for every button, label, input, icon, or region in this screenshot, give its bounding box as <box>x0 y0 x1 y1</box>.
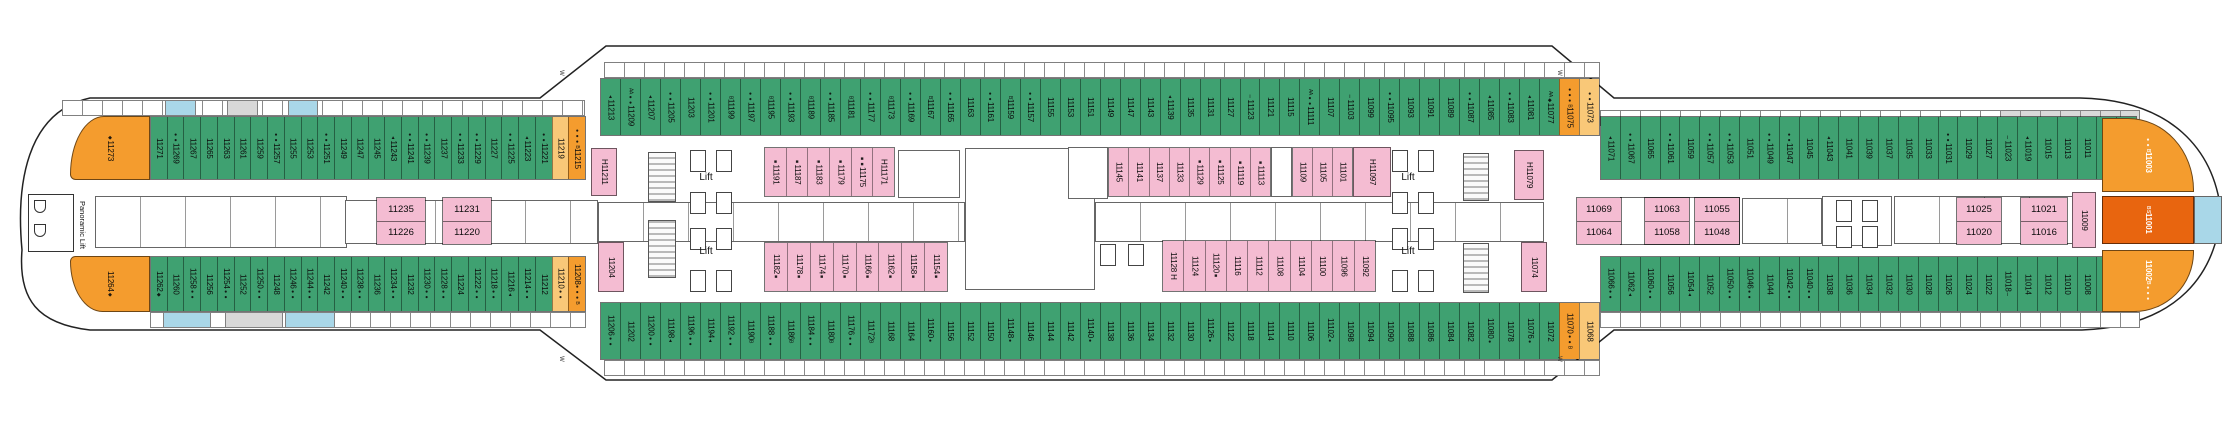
cabin-11062[interactable]: 11062▲ <box>1620 257 1640 311</box>
cabin-11032[interactable]: 11032 <box>1878 257 1898 311</box>
cabin-11212[interactable]: 11212 <box>535 257 552 311</box>
lift-shaft-icon <box>1392 270 1408 292</box>
cabin-11039[interactable]: 11039 <box>1858 117 1878 179</box>
cabin-11144[interactable]: 11144 <box>1040 303 1060 359</box>
cabin-11208[interactable]: 11208●●● B <box>568 257 585 311</box>
cabin-11205[interactable]: ●●11205 <box>660 79 680 135</box>
cabin-11088[interactable]: 11088 <box>1399 303 1419 359</box>
cabin-11123[interactable]: Ⅰ11123 <box>1240 79 1260 135</box>
cabin-11249[interactable]: 11249 <box>334 117 351 179</box>
cabin-11204[interactable]: 11204 <box>598 242 624 292</box>
cabin-11216[interactable]: 11216▲ <box>501 257 518 311</box>
cabin-label: 11100 <box>1318 256 1326 276</box>
cabin-11153[interactable]: 11153 <box>1060 79 1080 135</box>
cabin-11200[interactable]: 11200●● <box>640 303 660 359</box>
cabin-11172[interactable]: 11172B <box>860 303 880 359</box>
cabin-11233[interactable]: ●●11233 <box>451 117 468 179</box>
cabin-11037[interactable]: 11037 <box>1878 117 1898 179</box>
cabin-11118[interactable]: 11118 <box>1240 303 1260 359</box>
cabin-11190[interactable]: 11190B <box>740 303 760 359</box>
cabin-11148[interactable]: 11148● <box>1000 303 1020 359</box>
cabin-11187[interactable]: ■11187 <box>786 148 808 196</box>
cabin-11189[interactable]: B11189 <box>800 79 820 135</box>
cabin-11086[interactable]: 11086 <box>1419 303 1439 359</box>
cabin-11028[interactable]: 11028 <box>1918 257 1938 311</box>
cabin-11152[interactable]: 11152 <box>960 303 980 359</box>
cabin-H11211[interactable]: H11211 <box>591 148 617 196</box>
cabin-11036[interactable]: 11036 <box>1838 257 1858 311</box>
cabin-11149[interactable]: 11149 <box>1100 79 1120 135</box>
cabin-11244[interactable]: 11244●● <box>301 257 318 311</box>
cabin-11258[interactable]: 11258●● <box>183 257 200 311</box>
cabin-label: 11039 <box>1865 138 1873 159</box>
cabin-number: 11147 <box>1126 97 1135 117</box>
cabin-11255[interactable]: 11255 <box>284 117 301 179</box>
cabin-11066[interactable]: 11066●● <box>1601 257 1620 311</box>
cabin-11251[interactable]: ●●11251 <box>317 117 334 179</box>
cabin-11230[interactable]: 11230●● <box>418 257 435 311</box>
cabin-label: 11248 <box>272 274 280 295</box>
cabin-11098[interactable]: 11098 <box>1339 303 1359 359</box>
cabin-11160[interactable]: 11160● <box>920 303 940 359</box>
cabin-label: 11200●● <box>646 315 654 347</box>
cabin-11146[interactable]: 11146 <box>1020 303 1040 359</box>
cabin-11020[interactable]: 11020 <box>1957 221 2001 245</box>
cabin-11069[interactable]: 11069 <box>1577 198 1621 221</box>
cabin-11196[interactable]: 11196●● <box>680 303 700 359</box>
cabin-11105[interactable]: 11105 <box>1312 148 1332 196</box>
cabin-11151[interactable]: 11151 <box>1080 79 1100 135</box>
cabin-pair-11231[interactable]: 1123111220 <box>442 197 492 245</box>
cabin-11219[interactable]: 11219 <box>552 117 569 179</box>
cabin-number: 11139 <box>1166 100 1175 120</box>
cabin-11154[interactable]: 11154■ <box>924 243 947 291</box>
cabin-11115[interactable]: 11115 <box>1279 79 1299 135</box>
cabin-11110[interactable]: 11110 <box>1279 303 1299 359</box>
cabin-11121[interactable]: 11121 <box>1259 79 1279 135</box>
cabin-11112[interactable]: 11112 <box>1247 241 1268 291</box>
cabin-11193[interactable]: ●●11193 <box>780 79 800 135</box>
cabin-pair-11021[interactable]: 1102111016 <box>2020 197 2068 245</box>
cabin-11026[interactable]: 11026 <box>1938 257 1958 311</box>
cabin-11155[interactable]: 11155 <box>1040 79 1060 135</box>
cabin-11010[interactable]: 11010 <box>2057 257 2077 311</box>
cabin-11214[interactable]: 11214●● <box>518 257 535 311</box>
cabin-11139[interactable]: ▲11139 <box>1160 79 1180 135</box>
cabin-number: 11133 <box>1175 162 1184 182</box>
cabin-11016[interactable]: 11016 <box>2021 221 2067 245</box>
cabin-11141[interactable]: 11141 <box>1128 148 1148 196</box>
cabin-11075[interactable]: ●●● B11075 <box>1559 79 1579 135</box>
cabin-label: 11192●● <box>726 315 734 346</box>
cabin-11074[interactable]: 11074 <box>1521 242 1547 292</box>
cabin-11011[interactable]: 11011 <box>2077 117 2097 179</box>
cabin-11218[interactable]: 11218●● <box>485 257 502 311</box>
cabin-marks: ■ <box>794 159 800 165</box>
cabin-11147[interactable]: 11147 <box>1120 79 1140 135</box>
cabin-number: 11014 <box>2023 274 2032 295</box>
cabin-11265[interactable]: 11265 <box>200 117 217 179</box>
cabin-11108[interactable]: 11108 <box>1268 241 1289 291</box>
cabin-11195[interactable]: B11195 <box>760 79 780 135</box>
cabin-11253[interactable]: 11253 <box>301 117 318 179</box>
cabin-11128H[interactable]: 11128 H <box>1163 241 1183 291</box>
cabin-11163[interactable]: 11163 <box>960 79 980 135</box>
cabin-11185[interactable]: ●●11185 <box>820 79 840 135</box>
cabin-number: 11033 <box>1924 138 1933 159</box>
cabin-11023[interactable]: Ⅰ11023 <box>1997 117 2017 179</box>
cabin-11091[interactable]: 11091 <box>1419 79 1439 135</box>
cabin-11087[interactable]: ●●11087 <box>1459 79 1479 135</box>
cabin-11238[interactable]: 11238●● <box>351 257 368 311</box>
cabin-11199[interactable]: B11199 <box>720 79 740 135</box>
cabin-row: 11145111411113711133■11129■11125■11119■1… <box>1108 147 1271 197</box>
cabin-11119[interactable]: ■11119 <box>1230 148 1250 196</box>
cabin-11133[interactable]: 11133 <box>1169 148 1189 196</box>
cabin-11068[interactable]: 11068 <box>1579 303 1599 359</box>
cabin-11092[interactable]: 11092 <box>1354 241 1375 291</box>
cabin-11137[interactable]: 11137 <box>1149 148 1169 196</box>
cabin-11161[interactable]: ●●11161 <box>980 79 1000 135</box>
cabin-11129[interactable]: ■11129 <box>1189 148 1209 196</box>
cabin-11116[interactable]: 11116 <box>1226 241 1247 291</box>
cabin-11271[interactable]: 11271 <box>151 117 167 179</box>
cabin-11252[interactable]: 11252 <box>234 257 251 311</box>
cabin-11134[interactable]: 11134 <box>1140 303 1160 359</box>
cabin-11235[interactable]: 11235 <box>377 198 425 221</box>
cabin-11168[interactable]: 11168 <box>880 303 900 359</box>
cabin-11109[interactable]: 11109 <box>1293 148 1312 196</box>
cabin-label: 11135 <box>1186 97 1194 117</box>
cabin-11015[interactable]: 11015 <box>2037 117 2057 179</box>
cabin-label: 11224 <box>456 274 464 295</box>
cabin-11001[interactable]: B S11001 <box>2102 196 2194 244</box>
cabin-11107[interactable]: 11107 <box>1319 79 1339 135</box>
cabin-11159[interactable]: B11159 <box>1000 79 1020 135</box>
cabin-11175[interactable]: ■■11175 <box>851 148 873 196</box>
cabin-11051[interactable]: 11051 <box>1739 117 1759 179</box>
cabin-11124[interactable]: 11124 <box>1183 241 1204 291</box>
cabin-11210[interactable]: 11210●● <box>552 257 569 311</box>
cabin-11191[interactable]: ■11191 <box>765 148 786 196</box>
cabin-11076[interactable]: 11076● <box>1519 303 1539 359</box>
cabin-marks: ●● <box>1607 289 1613 300</box>
cabin-11125[interactable]: ■11125 <box>1209 148 1229 196</box>
cabin-H11171[interactable]: H11171 <box>872 148 894 196</box>
cabin-11206[interactable]: 11206●● <box>601 303 620 359</box>
cabin-11263[interactable]: 11263 <box>217 117 234 179</box>
cabin-11164[interactable]: 11164 <box>900 303 920 359</box>
cabin-11094[interactable]: 11094 <box>1359 303 1379 359</box>
cabin-11065[interactable]: 11065 <box>1640 117 1660 179</box>
cabin-11234[interactable]: 11234●● <box>384 257 401 311</box>
cabin-11197[interactable]: ●●11197 <box>740 79 760 135</box>
cabin-11084[interactable]: 11084 <box>1439 303 1459 359</box>
cabin-11056[interactable]: 11056 <box>1660 257 1680 311</box>
cabin-11207[interactable]: ▲11207 <box>640 79 660 135</box>
cabin-11100[interactable]: 11100 <box>1311 241 1332 291</box>
cabin-11106[interactable]: 11106 <box>1299 303 1319 359</box>
cabin-label: 11026 <box>1944 274 1952 295</box>
cabin-11082[interactable]: 11082 <box>1459 303 1479 359</box>
cabin-number: 11105 <box>1319 162 1328 182</box>
cabin-11194[interactable]: 11194▲ <box>700 303 720 359</box>
cabin-11156[interactable]: 11156 <box>940 303 960 359</box>
cabin-11228[interactable]: 11228●● <box>434 257 451 311</box>
cabin-11031[interactable]: ●●11031 <box>1938 117 1958 179</box>
cabin-pair-11055[interactable]: 1105511048 <box>1694 197 1740 245</box>
cabin-11055[interactable]: 11055 <box>1695 198 1739 221</box>
cabin-11179[interactable]: ■11179 <box>829 148 851 196</box>
cabin-11227[interactable]: 11227 <box>485 117 502 179</box>
cabin-11083[interactable]: ●●11083 <box>1499 79 1519 135</box>
cabin-11127[interactable]: 11127 <box>1220 79 1240 135</box>
cabin-11254[interactable]: 11254●● <box>217 257 234 311</box>
cabin-11201[interactable]: ●●11201 <box>700 79 720 135</box>
cabin-11095[interactable]: ●●11095 <box>1379 79 1399 135</box>
cabin-11247[interactable]: 11247 <box>351 117 368 179</box>
cabin-11142[interactable]: 11142 <box>1060 303 1080 359</box>
cabin-11260[interactable]: 11260 <box>167 257 184 311</box>
cabin-11184[interactable]: 11184●● <box>800 303 820 359</box>
cabin-11012[interactable]: 11012 <box>2037 257 2057 311</box>
cabin-11053[interactable]: ●●11053 <box>1719 117 1739 179</box>
cabin-11240[interactable]: 11240●● <box>334 257 351 311</box>
cabin-11057[interactable]: ●●11057 <box>1699 117 1719 179</box>
cabin-11077[interactable]: AA ◆11077 <box>1539 79 1559 135</box>
cabin-11165[interactable]: ●●11165 <box>940 79 960 135</box>
cabin-11008[interactable]: 11008 <box>2077 257 2097 311</box>
cabin-11113[interactable]: ■11113 <box>1250 148 1270 196</box>
cabin-11176[interactable]: 11176●● <box>840 303 860 359</box>
cabin-11022[interactable]: 11022 <box>1977 257 1997 311</box>
cabin-11143[interactable]: 11143 <box>1140 79 1160 135</box>
cabin-11250[interactable]: 11250●● <box>250 257 267 311</box>
cabin-11072[interactable]: 11072 <box>1539 303 1559 359</box>
cabin-11157[interactable]: ●●11157 <box>1020 79 1040 135</box>
cabin-number: 11223 <box>523 140 532 161</box>
cabin-label: 11265 <box>205 138 213 159</box>
cabin-11038[interactable]: 11038 <box>1818 257 1838 311</box>
cabin-11049[interactable]: ●●11049 <box>1759 117 1779 179</box>
cabin-11180[interactable]: 11180B <box>820 303 840 359</box>
service-room <box>1271 147 1292 197</box>
cabin-label: ●●11225 <box>506 132 514 164</box>
cabin-11043[interactable]: ▲11043 <box>1818 117 1838 179</box>
cabin-marks: ■ <box>1213 273 1219 279</box>
cabin-pair-11025[interactable]: 1102511020 <box>1956 197 2002 245</box>
cabin-number: 11071 <box>1606 140 1615 161</box>
cabin-11021[interactable]: 11021 <box>2021 198 2067 221</box>
cabin-11101[interactable]: 11101 <box>1332 148 1352 196</box>
cabin-11025[interactable]: 11025 <box>1957 198 2001 221</box>
cabin-11177[interactable]: ●●11177 <box>860 79 880 135</box>
cabin-11223[interactable]: ▲11223 <box>518 117 535 179</box>
cabin-11229[interactable]: ●●11229 <box>468 117 485 179</box>
cabin-number: 11020 <box>1966 227 1992 238</box>
cabin-11024[interactable]: 11024 <box>1957 257 1977 311</box>
cabin-11257[interactable]: ●●11257 <box>267 117 284 179</box>
cabin-11173[interactable]: B11173 <box>880 79 900 135</box>
cabin-11122[interactable]: 11122 <box>1220 303 1240 359</box>
cabin-11042[interactable]: 11042●● <box>1779 257 1799 311</box>
cabin-11034[interactable]: 11034 <box>1858 257 1878 311</box>
cabin-11209[interactable]: AA ●●11209 <box>620 79 640 135</box>
cabin-11081[interactable]: ▲11081 <box>1519 79 1539 135</box>
cabin-H11079[interactable]: H11079 <box>1514 150 1544 200</box>
cabin-11174[interactable]: 11174■ <box>810 243 833 291</box>
cabin-11078[interactable]: 11078 <box>1499 303 1519 359</box>
cabin-11231[interactable]: 11231 <box>443 198 491 221</box>
cabin-11103[interactable]: Ⅰ11103 <box>1339 79 1359 135</box>
cabin-11030[interactable]: 11030 <box>1898 257 1918 311</box>
cabin-number: 11002 <box>2144 260 2153 281</box>
cabin-11104[interactable]: 11104 <box>1290 241 1311 291</box>
cabin-label: ●●11205 <box>666 91 674 123</box>
cabin-11073[interactable]: ●●11073 <box>1579 79 1599 135</box>
cabin-11243[interactable]: ▲11243 <box>384 117 401 179</box>
cabin-number: 11199 <box>726 98 735 118</box>
cabin-row: ■11191■11187■11183■11179■■11175H11171 <box>764 147 895 197</box>
cabin-11009[interactable]: 11009 <box>2072 192 2096 248</box>
cabin-11035[interactable]: 11035 <box>1898 117 1918 179</box>
cabin-11120[interactable]: 11120■ <box>1205 241 1226 291</box>
cabin-11033[interactable]: 11033 <box>1918 117 1938 179</box>
cabin-11232[interactable]: 11232 <box>401 257 418 311</box>
cabin-11269[interactable]: ●●11269 <box>167 117 184 179</box>
cabin-11267[interactable]: 11267 <box>183 117 200 179</box>
cabin-11089[interactable]: 11089 <box>1439 79 1459 135</box>
cabin-11046[interactable]: 11046●● <box>1739 257 1759 311</box>
cabin-11067[interactable]: ●●11067 <box>1620 117 1640 179</box>
cabin-11178[interactable]: 11178■ <box>787 243 810 291</box>
cabin-11226[interactable]: 11226 <box>377 221 425 245</box>
cabin-11186[interactable]: 11186B <box>780 303 800 359</box>
cabin-11241[interactable]: ●●11241 <box>401 117 418 179</box>
cabin-11259[interactable]: 11259 <box>250 117 267 179</box>
cabin-11181[interactable]: B11181 <box>840 79 860 135</box>
cabin-11220[interactable]: 11220 <box>443 221 491 245</box>
cabin-number: 11191 <box>771 165 780 185</box>
cabin-11202[interactable]: 11202 <box>620 303 640 359</box>
cabin-11060[interactable]: 11060●● <box>1640 257 1660 311</box>
cabin-11215[interactable]: ●●● B11215 <box>568 117 585 179</box>
cabin-11239[interactable]: ●●11239 <box>418 117 435 179</box>
cabin-11130[interactable]: 11130 <box>1180 303 1200 359</box>
cabin-11246[interactable]: 11246●● <box>284 257 301 311</box>
cabin-11044[interactable]: 11044 <box>1759 257 1779 311</box>
cabin-marks: ● <box>1007 338 1013 344</box>
cabin-11222[interactable]: 11222●● <box>468 257 485 311</box>
cabin-11145[interactable]: 11145 <box>1109 148 1128 196</box>
cabin-11221[interactable]: ●●11221 <box>535 117 552 179</box>
cabin-label: 11037 <box>1884 138 1892 159</box>
cabin-11058[interactable]: 11058 <box>1645 221 1689 245</box>
cabin-11166[interactable]: 11166■ <box>856 243 879 291</box>
cabin-11256[interactable]: 11256 <box>200 257 217 311</box>
cabin-11054[interactable]: 11054▲ <box>1679 257 1699 311</box>
cabin-11150[interactable]: 11150 <box>980 303 1000 359</box>
cabin-11064[interactable]: 11064 <box>1577 221 1621 245</box>
cabin-11050[interactable]: 11050●● <box>1719 257 1739 311</box>
cabin-pair-11235[interactable]: 1123511226 <box>376 197 426 245</box>
cabin-11213[interactable]: ▲11213 <box>601 79 620 135</box>
cabin-11182[interactable]: 11182■ <box>765 243 787 291</box>
cabin-11203[interactable]: 11203 <box>680 79 700 135</box>
cabin-11248[interactable]: 11248 <box>267 257 284 311</box>
cabin-11099[interactable]: 11099 <box>1359 79 1379 135</box>
cabin-11102[interactable]: 11102● <box>1319 303 1339 359</box>
cabin-11052[interactable]: 11052 <box>1699 257 1719 311</box>
cabin-11071[interactable]: ▲11071 <box>1601 117 1620 179</box>
cabin-11019[interactable]: ▲11019 <box>2017 117 2037 179</box>
cabin-11192[interactable]: 11192●● <box>720 303 740 359</box>
cabin-11136[interactable]: 11136 <box>1120 303 1140 359</box>
cabin-11090[interactable]: 11090 <box>1379 303 1399 359</box>
cabin-11224[interactable]: 11224 <box>451 257 468 311</box>
cabin-pair-11069[interactable]: 1106911064 <box>1576 197 1622 245</box>
cabin-11059[interactable]: 11059 <box>1679 117 1699 179</box>
cabin-11096[interactable]: 11096 <box>1332 241 1353 291</box>
cabin-11132[interactable]: 11132 <box>1160 303 1180 359</box>
cabin-number: 11108 <box>1276 256 1285 276</box>
cabin-11242[interactable]: 11242 <box>317 257 334 311</box>
cabin-11169[interactable]: ●●11169 <box>900 79 920 135</box>
cabin-11188[interactable]: 11188●● <box>760 303 780 359</box>
cabin-11237[interactable]: 11237 <box>434 117 451 179</box>
cabin-11236[interactable]: 11236 <box>368 257 385 311</box>
cabin-number: 11053 <box>1726 143 1735 164</box>
cabin-11063[interactable]: 11063 <box>1645 198 1689 221</box>
cabin-11013[interactable]: 11013 <box>2057 117 2077 179</box>
cabin-11225[interactable]: ●●11225 <box>501 117 518 179</box>
cabin-11045[interactable]: 11045 <box>1799 117 1819 179</box>
cabin-number: 11204 <box>607 257 616 278</box>
cabin-11093[interactable]: 11093 <box>1399 79 1419 135</box>
cabin-11140[interactable]: 11140● <box>1080 303 1100 359</box>
cabin-pair-11063[interactable]: 1106311058 <box>1644 197 1690 245</box>
cabin-11135[interactable]: 11135 <box>1180 79 1200 135</box>
cabin-11111[interactable]: AA ●●11111 <box>1299 79 1319 135</box>
cabin-11027[interactable]: 11027 <box>1977 117 1997 179</box>
cabin-11261[interactable]: 11261 <box>234 117 251 179</box>
cabin-11061[interactable]: ●●11061 <box>1660 117 1680 179</box>
cabin-11126[interactable]: 11126● <box>1200 303 1220 359</box>
cabin-11170[interactable]: 11170■ <box>833 243 856 291</box>
cabin-11047[interactable]: ●●11047 <box>1779 117 1799 179</box>
cabin-number: 11118 <box>1246 321 1255 340</box>
cabin-11070[interactable]: 11070●● B <box>1559 303 1579 359</box>
cabin-11048[interactable]: 11048 <box>1695 221 1739 245</box>
cabin-11162[interactable]: 11162■ <box>878 243 901 291</box>
cabin-11198[interactable]: 11198▲ <box>660 303 680 359</box>
cabin-11131[interactable]: 11131 <box>1200 79 1220 135</box>
cabin-11167[interactable]: B11167 <box>920 79 940 135</box>
cabin-11114[interactable]: 11114 <box>1259 303 1279 359</box>
cabin-11029[interactable]: 11029 <box>1957 117 1977 179</box>
cabin-11018[interactable]: 11018Ⅰ <box>1997 257 2017 311</box>
cabin-11158[interactable]: 11158■ <box>901 243 924 291</box>
cabin-11183[interactable]: ■11183 <box>807 148 829 196</box>
cabin-11040[interactable]: 11040●● <box>1799 257 1819 311</box>
cabin-11080[interactable]: 11080● <box>1479 303 1499 359</box>
cabin-11262[interactable]: 11262◆ <box>151 257 167 311</box>
cabin-11085[interactable]: ▲11085 <box>1479 79 1499 135</box>
cabin-11014[interactable]: 11014 <box>2017 257 2037 311</box>
cabin-11245[interactable]: 11245 <box>368 117 385 179</box>
cabin-11041[interactable]: 11041 <box>1838 117 1858 179</box>
cabin-11138[interactable]: 11138 <box>1100 303 1120 359</box>
